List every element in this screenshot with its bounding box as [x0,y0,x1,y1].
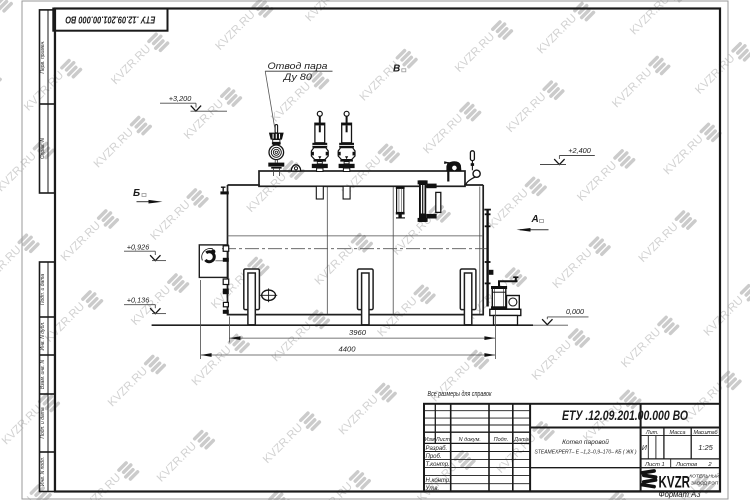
svg-text:Листов: Листов [675,462,697,468]
svg-text:Взам. инв. N: Взам. инв. N [40,360,46,390]
svg-text:+2,400: +2,400 [568,146,591,155]
svg-text:Т.контр.: Т.контр. [426,462,450,468]
svg-text:Котел паровой: Котел паровой [562,438,609,446]
svg-text:+0,926: +0,926 [127,242,150,251]
svg-text:3960: 3960 [349,330,366,337]
svg-text:Н.контр.: Н.контр. [426,478,451,484]
svg-text:4400: 4400 [339,347,356,354]
svg-text:Масштаб: Масштаб [694,430,719,436]
svg-text:Инв. N дубл.: Инв. N дубл. [40,322,46,351]
svg-text:Все размеры для справок: Все размеры для справок [428,390,493,398]
svg-text:А: А [531,214,539,225]
svg-text:1:25: 1:25 [698,443,713,452]
svg-text:Дата: Дата [513,437,529,443]
svg-text:Утв.: Утв. [425,486,440,492]
svg-text:Перв. примен.: Перв. примен. [40,40,46,73]
svg-text:ЕТУ .12.09.201.00.000 ВО: ЕТУ .12.09.201.00.000 ВО [65,14,155,25]
svg-text:KVZR: KVZR [659,474,691,492]
svg-text:Подп.: Подп. [494,437,509,443]
svg-text:Б: Б [133,188,140,199]
svg-text:ЗАВОД РЭП: ЗАВОД РЭП [691,481,719,487]
svg-text:+3,200: +3,200 [169,94,192,103]
svg-text:В: В [393,64,400,75]
svg-text:Подп. и дата: Подп. и дата [40,274,46,306]
svg-text:Проб.: Проб. [426,454,442,460]
svg-text:Масса: Масса [670,430,686,436]
svg-text:Подп. и дата: Подп. и дата [40,407,46,439]
svg-text:Лист: Лист [435,437,451,443]
svg-text:ЕТУ .12.09.201.00.000 ВО: ЕТУ .12.09.201.00.000 ВО [562,407,688,423]
svg-text:Инв. N подл.: Инв. N подл. [40,457,46,486]
svg-text:Отвод пара: Отвод пара [268,61,328,71]
svg-text:0,000: 0,000 [566,307,585,316]
svg-text:N докум.: N докум. [459,437,481,443]
svg-text:Разраб.: Разраб. [426,446,448,452]
svg-text:Справ. N: Справ. N [40,138,46,159]
svg-text:Формат А3: Формат А3 [659,490,702,499]
svg-text:Изм: Изм [424,437,434,443]
svg-text:Ду 80: Ду 80 [283,72,312,82]
svg-text:STEAMEXPERT– Е –1,2–0,9–170– К: STEAMEXPERT– Е –1,2–0,9–170– КБ ( ЖК ) [535,450,637,456]
svg-text:Лит.: Лит. [645,430,659,436]
svg-text:Лист 1: Лист 1 [644,462,665,468]
svg-text:+0,136: +0,136 [127,296,150,305]
